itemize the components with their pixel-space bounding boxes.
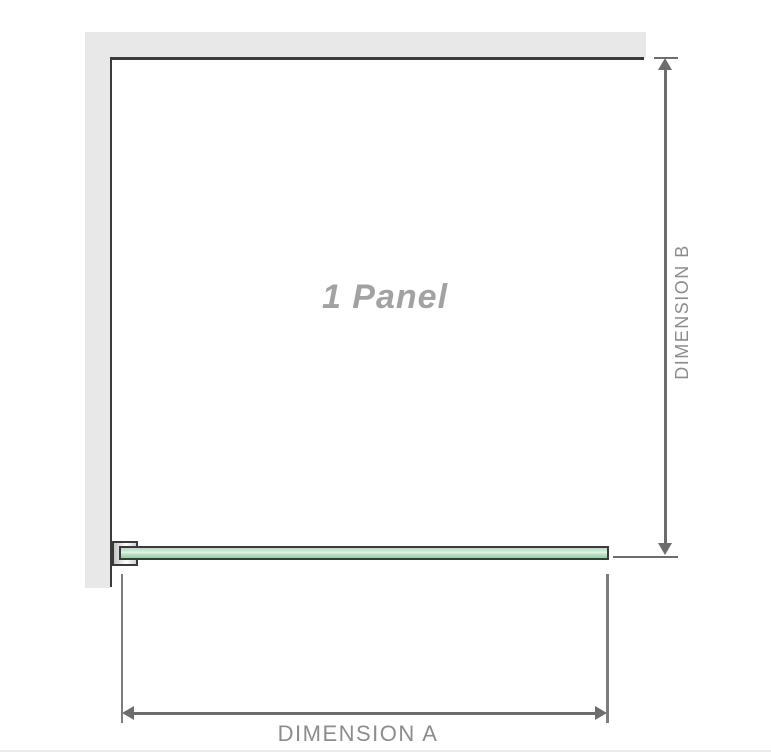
dimension-b-line <box>664 61 667 550</box>
dimension-b-bottom-tick <box>613 556 678 559</box>
wall-left-strip <box>85 32 111 588</box>
bottom-divider <box>0 750 771 752</box>
wall-inner-edge-vertical <box>110 57 113 587</box>
dimension-a-left-extension-line <box>121 574 124 723</box>
dimension-a-line <box>130 712 600 715</box>
wall-inner-edge-horizontal <box>110 57 644 60</box>
wall-top-strip <box>85 32 646 58</box>
panel-count-label: 1 Panel <box>285 278 485 320</box>
dimension-b-label: DIMENSION B <box>672 227 692 397</box>
glass-panel <box>119 546 609 560</box>
arrowhead-up-icon <box>658 58 672 70</box>
arrowhead-down-icon <box>658 543 672 555</box>
panel-dimension-diagram: 1 Panel DIMENSION B DIMENSION A <box>0 0 771 755</box>
dimension-a-right-extension-line <box>606 574 609 723</box>
arrowhead-right-icon <box>595 706 607 720</box>
dimension-a-label: DIMENSION A <box>248 721 468 747</box>
arrowhead-left-icon <box>122 706 134 720</box>
